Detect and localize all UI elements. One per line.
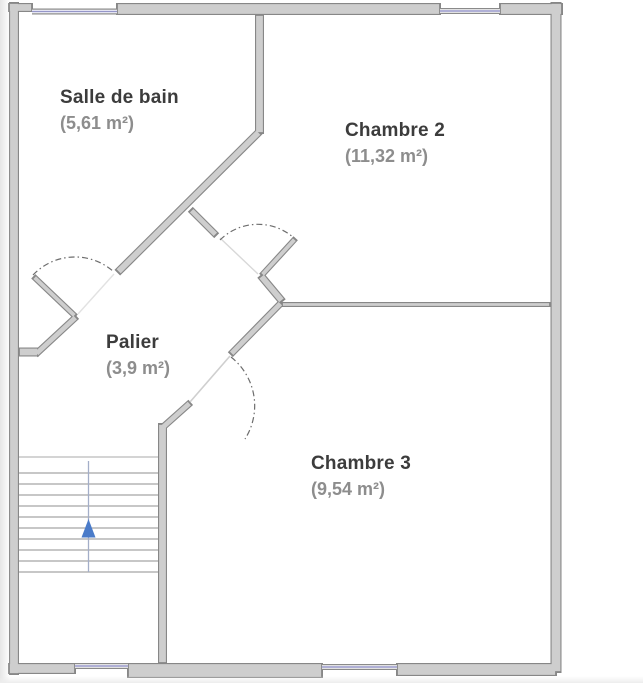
- room-name: Palier: [106, 333, 170, 354]
- room-area: (5,61 m²): [60, 114, 179, 134]
- room-area: (3,9 m²): [106, 359, 170, 379]
- room-label-chambre-2: Chambre 2 (11,32 m²): [345, 121, 445, 167]
- bathroom-door-arc: [33, 257, 114, 275]
- room-area: (9,54 m²): [311, 480, 411, 500]
- room-area: (11,32 m²): [345, 147, 445, 167]
- room-label-chambre-3: Chambre 3 (9,54 m²): [311, 454, 411, 500]
- room-name: Salle de bain: [60, 88, 179, 109]
- chambre2-door-arc: [220, 224, 294, 240]
- room-name: Chambre 2: [345, 121, 445, 142]
- staircase: [19, 457, 158, 572]
- room-name: Chambre 3: [311, 454, 411, 475]
- chambre3-door-leaf: [190, 356, 230, 402]
- room-label-palier: Palier (3,9 m²): [106, 333, 170, 379]
- floor-plan: Salle de bain (5,61 m²) Chambre 2 (11,32…: [0, 0, 643, 683]
- chambre3-door-arc: [231, 357, 255, 439]
- bathroom-door-leaf: [78, 274, 114, 314]
- chambre2-door-leaf: [220, 238, 258, 274]
- room-label-salle-de-bain: Salle de bain (5,61 m²): [60, 88, 179, 134]
